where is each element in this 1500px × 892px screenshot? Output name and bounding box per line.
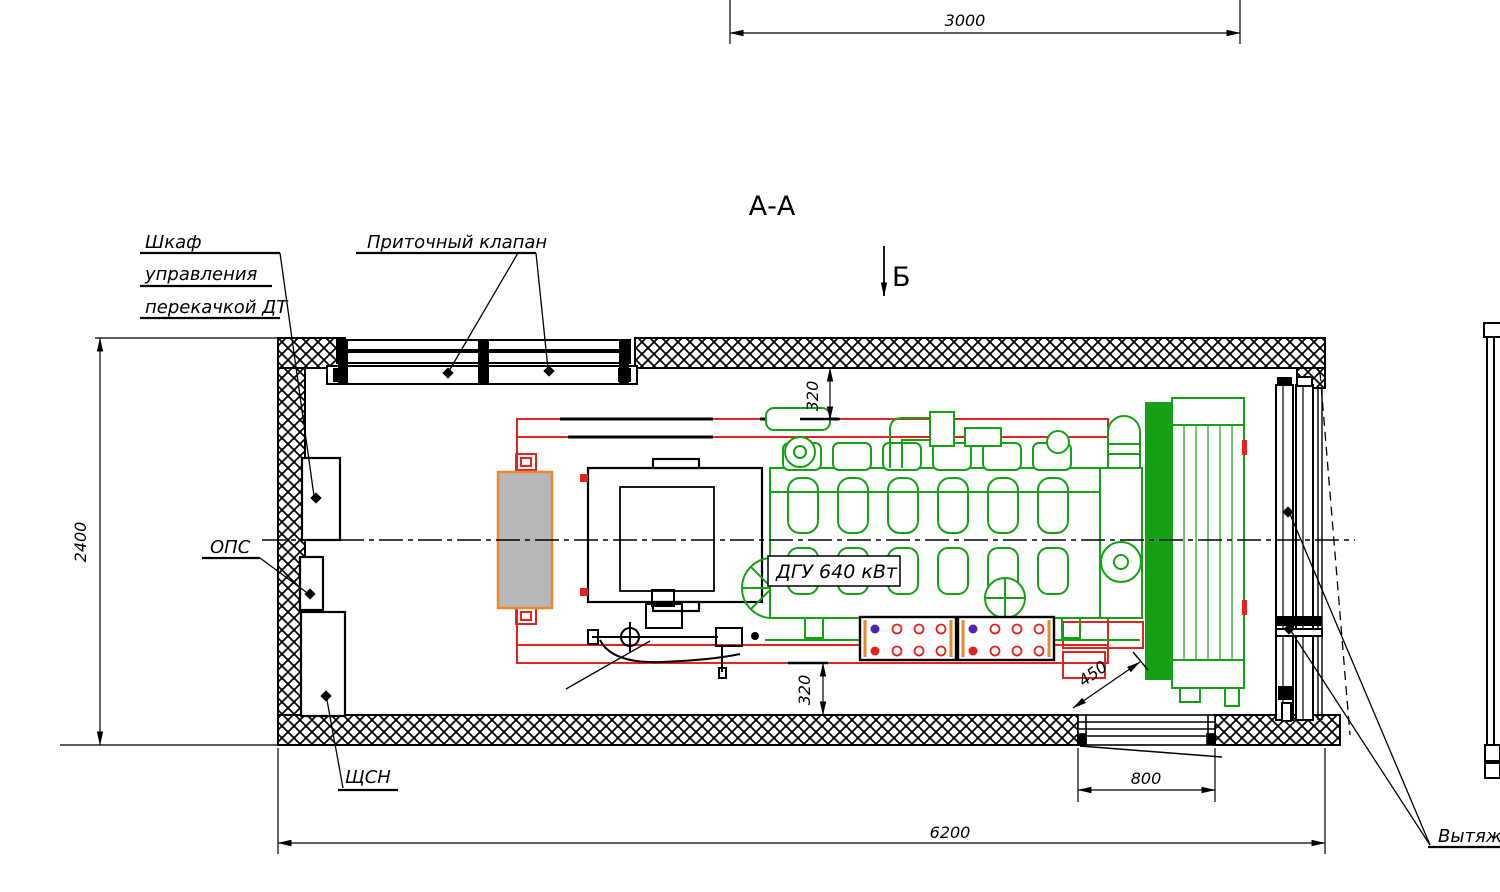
genset-label: ДГУ 640 кВт — [768, 556, 900, 586]
view-marker-text: Б — [892, 262, 911, 293]
fuel-cabinet-label-line1: Шкаф — [145, 232, 202, 253]
supply-valve-label: Приточный клапан — [367, 232, 547, 253]
section-title: А-А — [749, 191, 796, 222]
genset-label-text: ДГУ 640 кВт — [775, 561, 898, 583]
fuel-cabinet-label-line2: управления — [144, 264, 258, 285]
aux-switchboard-box — [301, 612, 345, 716]
dim-800-text: 800 — [1131, 769, 1162, 788]
fire-alarm-box — [300, 557, 323, 610]
aux-switchboard-label: ЩСН — [345, 767, 391, 788]
alternator — [580, 459, 762, 611]
section-view-drawing: 3000 2400 320 320 450 800 6200 Шкаф упра… — [0, 0, 1500, 892]
exhaust-valve-label: Вытяж. — [1438, 826, 1500, 847]
radiator — [1172, 398, 1244, 706]
dim-2400-text: 2400 — [71, 522, 90, 563]
dim-320-top-text: 320 — [803, 381, 822, 412]
fuel-transfer-cabinet-box — [302, 458, 340, 540]
fire-alarm-label: ОПС — [210, 537, 251, 558]
battery-boxes — [860, 617, 1054, 660]
dim-6200-text: 6200 — [930, 823, 971, 842]
supply-valve-assembly — [327, 340, 637, 384]
fan-shroud — [1145, 402, 1171, 680]
dim-320-bottom-text: 320 — [795, 675, 814, 706]
dim-3000-text: 3000 — [945, 11, 986, 30]
fuel-cabinet-label-line3: перекачкой ДТ — [145, 297, 289, 318]
